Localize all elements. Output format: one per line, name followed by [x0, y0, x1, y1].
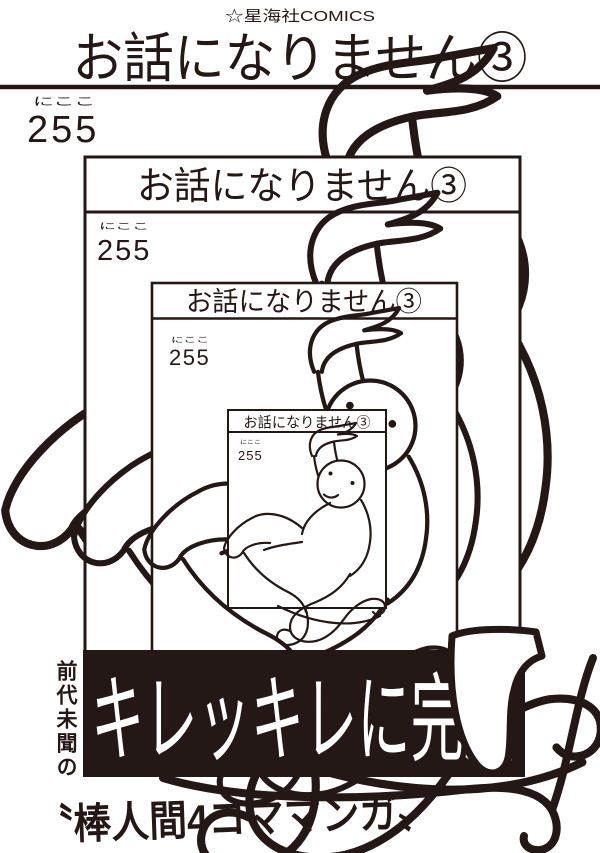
outer-foot-overlay: [451, 629, 542, 773]
main-title: お話になりません③: [73, 29, 528, 89]
nested-author-4: 255: [238, 448, 263, 463]
nested-title-2: お話になりません③: [137, 166, 467, 208]
nested-author-2: 255: [97, 235, 151, 267]
outer-leg-shin: [552, 658, 593, 810]
nested-title-3: お話になりません③: [186, 287, 422, 317]
author-furigana: にここ: [33, 96, 95, 108]
nested-author-furigana-2: にここ: [99, 221, 149, 231]
cover-art: お話になりません③ にここ 255 お話になりません③ にここ 255 お話にな…: [0, 0, 600, 853]
nested-author-furigana-4: にここ: [240, 439, 261, 446]
publisher-mark: ☆星海社COMICS: [225, 8, 375, 25]
nested-author-furigana-3: にここ: [171, 336, 209, 344]
nested-author-3: 255: [169, 345, 210, 370]
vertical-tagline: 前代未聞の: [48, 660, 82, 812]
author-name: 255: [27, 109, 99, 151]
